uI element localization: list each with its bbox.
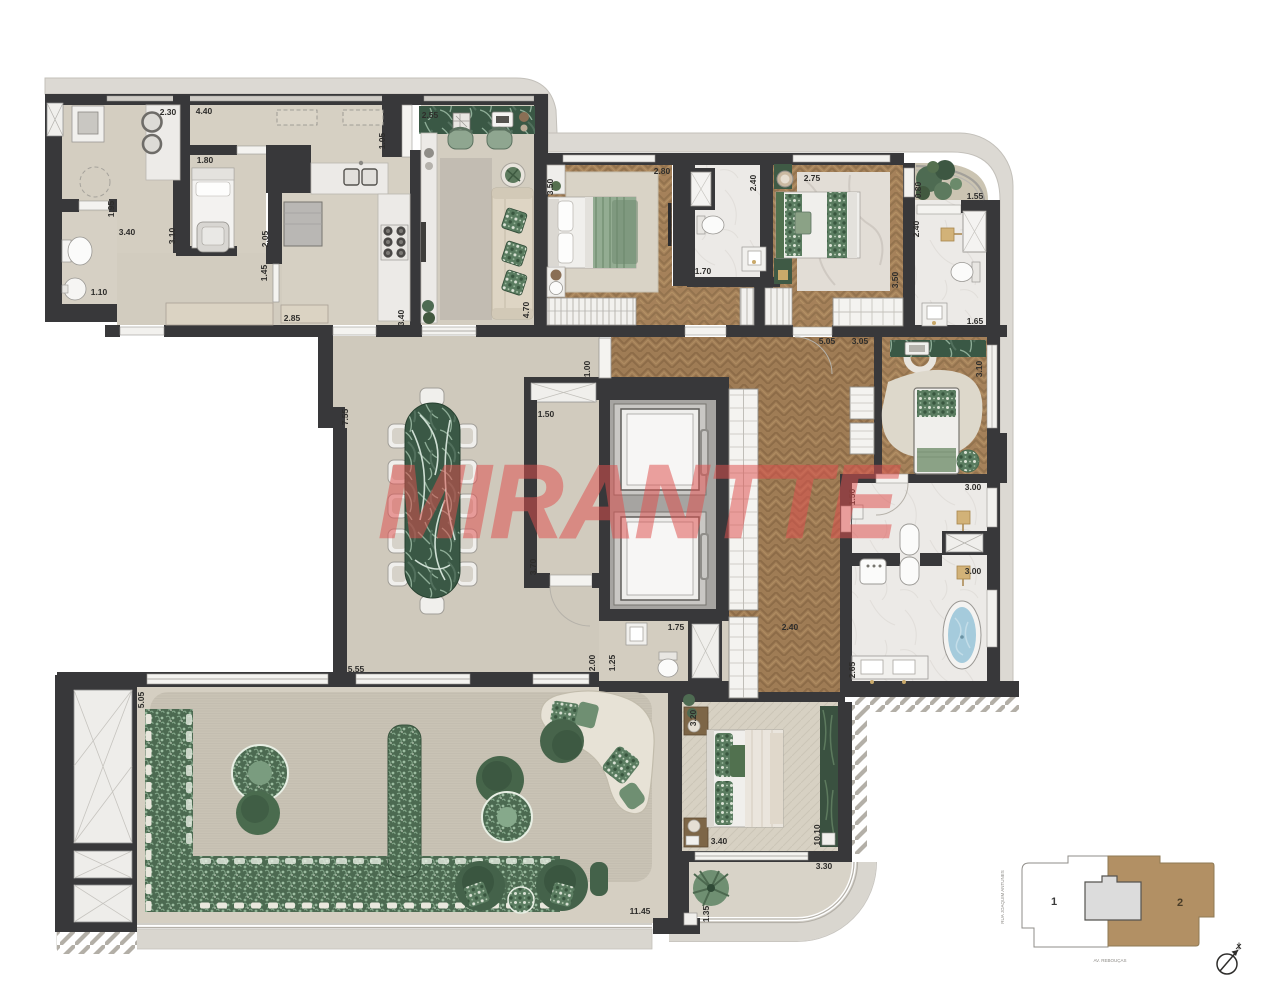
svg-text:MIRANTTE: MIRANTTE	[379, 444, 900, 559]
svg-text:3.40: 3.40	[396, 309, 406, 326]
svg-text:2.75: 2.75	[804, 173, 821, 183]
svg-text:5.05: 5.05	[136, 691, 146, 708]
svg-text:2.00: 2.00	[587, 654, 597, 671]
svg-text:AV. REBOUÇAS: AV. REBOUÇAS	[1093, 958, 1126, 963]
svg-text:1.65: 1.65	[967, 316, 984, 326]
svg-text:1.05: 1.05	[377, 132, 387, 149]
svg-text:1.95: 1.95	[106, 200, 116, 217]
svg-text:2: 2	[1177, 897, 1183, 909]
svg-text:3.00: 3.00	[965, 482, 982, 492]
svg-text:2.30: 2.30	[160, 107, 177, 117]
svg-text:7.55: 7.55	[340, 408, 350, 425]
svg-text:2.80: 2.80	[654, 166, 671, 176]
svg-text:3.10: 3.10	[167, 227, 177, 244]
svg-text:1.00: 1.00	[582, 360, 592, 377]
svg-text:3.40: 3.40	[119, 227, 136, 237]
svg-text:1.50: 1.50	[538, 409, 555, 419]
svg-text:10.10: 10.10	[812, 824, 822, 846]
svg-text:3.05: 3.05	[852, 336, 869, 346]
svg-text:2.40: 2.40	[782, 622, 799, 632]
svg-text:2.55: 2.55	[422, 110, 439, 120]
svg-text:3.10: 3.10	[974, 360, 984, 377]
svg-text:3.00: 3.00	[965, 566, 982, 576]
svg-text:2.40: 2.40	[748, 174, 758, 191]
svg-text:5.55: 5.55	[348, 664, 365, 674]
svg-text:1.75: 1.75	[668, 622, 685, 632]
svg-text:3.20: 3.20	[688, 709, 698, 726]
svg-text:3.40: 3.40	[711, 836, 728, 846]
svg-text:1.45: 1.45	[259, 264, 269, 281]
svg-text:1: 1	[1051, 896, 1057, 908]
svg-text:0.80: 0.80	[913, 181, 923, 198]
svg-text:2.05: 2.05	[260, 230, 270, 247]
svg-text:3.50: 3.50	[545, 178, 555, 195]
svg-text:3.70: 3.70	[528, 558, 538, 575]
svg-text:5.05: 5.05	[819, 336, 836, 346]
svg-text:2.65: 2.65	[847, 661, 857, 678]
svg-text:4.70: 4.70	[521, 301, 531, 318]
svg-text:2.85: 2.85	[284, 313, 301, 323]
svg-text:1.35: 1.35	[701, 905, 711, 922]
svg-text:1.10: 1.10	[91, 287, 108, 297]
svg-text:3.30: 3.30	[816, 861, 833, 871]
svg-text:4.40: 4.40	[196, 106, 213, 116]
svg-text:2.40: 2.40	[911, 220, 921, 237]
svg-text:1.70: 1.70	[695, 266, 712, 276]
svg-text:3.50: 3.50	[890, 271, 900, 288]
svg-text:1.25: 1.25	[607, 654, 617, 671]
svg-text:RUA JOAQUIM ANTUNES: RUA JOAQUIM ANTUNES	[1000, 870, 1005, 924]
svg-text:11.45: 11.45	[630, 906, 651, 916]
svg-text:1.80: 1.80	[197, 155, 214, 165]
svg-text:1.55: 1.55	[967, 191, 984, 201]
